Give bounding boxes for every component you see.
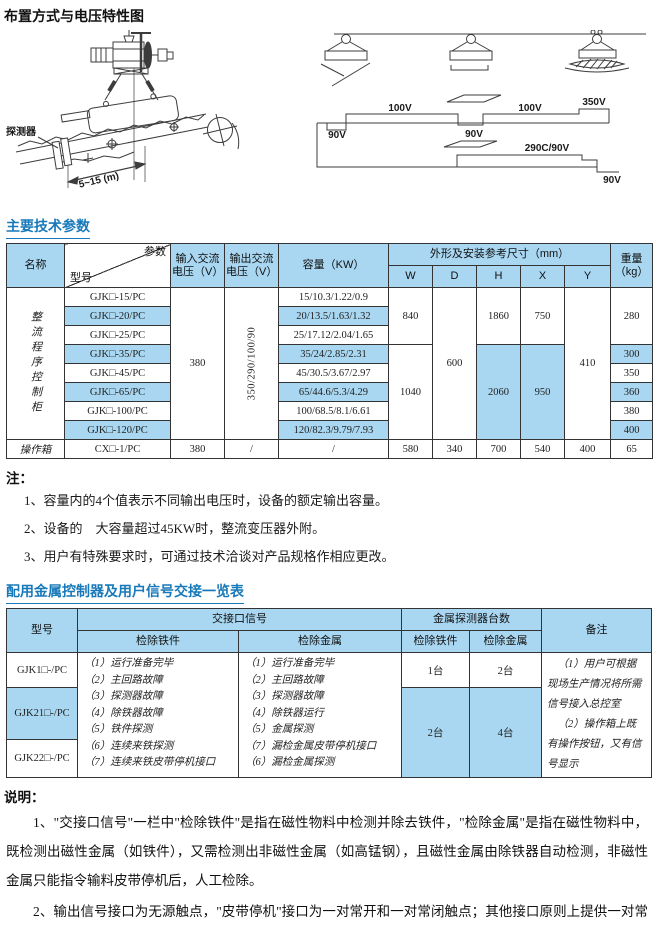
- col-header-output: 输出交流电压（V）: [225, 244, 279, 288]
- cell-name: 操作箱: [7, 440, 65, 459]
- col-header-weight: 重量（kg）: [611, 244, 653, 288]
- cell-model: GJK□-100/PC: [65, 402, 171, 421]
- voltage-label-100v-1: 100V: [388, 103, 412, 114]
- iron-signal-list: （1）运行准备完毕 （2）主回路故障 （3）探测器故障 （4）除铁器故障 （5）…: [78, 653, 239, 778]
- cell-model: GJK□-20/PC: [65, 307, 171, 326]
- notes-section: 注： 1、容量内的4个值表示不同输出电压时，设备的额定输出容量。 2、设备的 大…: [6, 467, 650, 571]
- cell-w: 1040: [389, 345, 433, 440]
- col-header-metal-signal: 检除金属: [239, 631, 402, 653]
- cell-y: 410: [565, 288, 611, 440]
- cell-input-voltage: 380: [171, 440, 225, 459]
- cell-model: GJK□-25/PC: [65, 326, 171, 345]
- signal-item: （1）运行准备完毕: [245, 656, 395, 673]
- cell-model: GJK□-15/PC: [65, 288, 171, 307]
- signal-item: （3）探测器故障: [245, 689, 395, 706]
- cell-model: GJK1□-/PC: [7, 653, 78, 688]
- page-title: 布置方式与电压特性图: [4, 6, 650, 26]
- signal-item: （4）除铁器故障: [84, 706, 232, 723]
- col-header-name: 名称: [7, 244, 65, 288]
- signal-item: （2）主回路故障: [245, 673, 395, 690]
- signal-item: （2）主回路故障: [84, 673, 232, 690]
- cell-iron-count: 1台: [402, 653, 470, 688]
- signal-table: 型号 交接口信号 金属探测器台数 备注 检除铁件 检除金属 检除铁件 检除金属 …: [6, 608, 652, 778]
- col-header-iron-count: 检除铁件: [402, 631, 470, 653]
- note-item: 1、容量内的4个值表示不同输出电压时，设备的额定输出容量。: [24, 487, 650, 515]
- cell-y: 400: [565, 440, 611, 459]
- col-header-model-param: 参数 型号: [65, 244, 171, 288]
- cell-model: GJK□-120/PC: [65, 421, 171, 440]
- col-header-d: D: [433, 266, 477, 288]
- section-title-params: 主要技术参数: [6, 216, 650, 239]
- signal-item: （7）连续来铁皮带停机接口: [84, 755, 232, 772]
- voltage-diagram: 90V 100V 90V 100V 350V 290C/90V 90V: [304, 30, 654, 205]
- distance-label: 5~15 (m): [78, 171, 120, 191]
- cell-w: 840: [389, 288, 433, 345]
- note-item: 3、用户有特殊要求时，可通过技术洽谈对产品规格作相应更改。: [24, 543, 650, 571]
- cell-input-voltage: 380: [171, 288, 225, 440]
- cell-capacity: 35/24/2.85/2.31: [279, 345, 389, 364]
- voltage-label-90v-right: 90V: [603, 175, 621, 186]
- signal-item: （6）漏检金属探测: [245, 755, 395, 772]
- col-header-metal-count: 检除金属: [470, 631, 542, 653]
- cell-capacity: 65/44.6/5.3/4.29: [279, 383, 389, 402]
- signal-item: （5）铁件探测: [84, 722, 232, 739]
- cell-capacity: 15/10.3/1.22/0.9: [279, 288, 389, 307]
- col-header-model: 型号: [7, 609, 78, 653]
- table-row: 操作箱 CX□-1/PC 380 / / 580 340 700 540 400…: [7, 440, 653, 459]
- cell-d: 600: [433, 288, 477, 440]
- cell-weight: 65: [611, 440, 653, 459]
- cell-model: GJK□-65/PC: [65, 383, 171, 402]
- voltage-label-290c-90v: 290C/90V: [525, 143, 570, 154]
- detector-label: 探测器: [6, 125, 37, 138]
- col-header-detectors: 金属探测器台数: [402, 609, 542, 631]
- col-header-h: H: [477, 266, 521, 288]
- tech-params-table: 名称 参数 型号 输入交流电压（V） 输出交流电压（V） 容量（KW） 外形及安…: [6, 243, 653, 459]
- cell-capacity: 45/30.5/3.67/2.97: [279, 364, 389, 383]
- note-item: 2、设备的 大容量超过45KW时，整流变压器外附。: [24, 515, 650, 543]
- signal-item: （7）漏检金属皮带停机接口: [245, 739, 395, 756]
- col-header-capacity: 容量（KW）: [279, 244, 389, 288]
- cell-model: CX□-1/PC: [65, 440, 171, 459]
- cell-w: 580: [389, 440, 433, 459]
- signal-item: （6）连续来铁探测: [84, 739, 232, 756]
- diag-model-label: 型号: [70, 272, 92, 285]
- cell-model: GJK□-35/PC: [65, 345, 171, 364]
- catalog-page: 布置方式与电压特性图: [0, 0, 654, 928]
- cell-x: 950: [521, 345, 565, 440]
- cell-capacity: 25/17.12/2.04/1.65: [279, 326, 389, 345]
- cell-weight: 380: [611, 402, 653, 421]
- explain-paragraph-2: 2、输出信号接口为无源触点，"皮带停机"接口为一对常开和一对常闭触点；其他接口原…: [6, 897, 648, 928]
- cell-weight: 280: [611, 288, 653, 345]
- cell-capacity: /: [279, 440, 389, 459]
- cell-x: 750: [521, 288, 565, 345]
- signal-item: （1）运行准备完毕: [84, 656, 232, 673]
- cell-h: 1860: [477, 288, 521, 345]
- cell-capacity: 100/68.5/8.1/6.61: [279, 402, 389, 421]
- cell-d: 340: [433, 440, 477, 459]
- cell-metal-count: 4台: [470, 688, 542, 778]
- remark-line: （2）操作箱上既有操作按钮，又有信号显示: [547, 715, 646, 775]
- table-row: GJK1□-/PC （1）运行准备完毕 （2）主回路故障 （3）探测器故障 （4…: [7, 653, 652, 688]
- col-header-iron-signal: 检除铁件: [78, 631, 239, 653]
- cell-capacity: 20/13.5/1.63/1.32: [279, 307, 389, 326]
- col-header-remark: 备注: [542, 609, 652, 653]
- col-header-input: 输入交流电压（V）: [171, 244, 225, 288]
- cell-weight: 360: [611, 383, 653, 402]
- metal-signal-list: （1）运行准备完毕 （2）主回路故障 （3）探测器故障 （4）除铁器运行 （5）…: [239, 653, 402, 778]
- voltage-label-100v-2: 100V: [518, 103, 542, 114]
- layout-diagram: 探测器 5~15 (m): [4, 30, 304, 205]
- voltage-label-90v-left: 90V: [328, 130, 346, 141]
- remark-line: （1）用户可根据现场生产情况将所需信号接入总控室: [547, 655, 646, 715]
- cell-h: 2060: [477, 345, 521, 440]
- voltage-label-350v: 350V: [582, 97, 606, 108]
- section-title-signals: 配用金属控制器及用户信号交接一览表: [6, 581, 650, 604]
- explain-paragraph-1: 1、"交接口信号"一栏中"检除铁件"是指在磁性物料中检测并除去铁件，"检除金属"…: [6, 808, 648, 895]
- table-row: 整流程序控制柜 GJK□-15/PC 380 350/290/100/90 15…: [7, 288, 653, 307]
- cell-model: GJK22□-/PC: [7, 740, 78, 778]
- cell-model: GJK□-45/PC: [65, 364, 171, 383]
- cell-output-voltage: 350/290/100/90: [225, 288, 279, 440]
- cell-weight: 350: [611, 364, 653, 383]
- cell-model: GJK21□-/PC: [7, 688, 78, 740]
- signal-item: （3）探测器故障: [84, 689, 232, 706]
- signal-item: （4）除铁器运行: [245, 706, 395, 723]
- cell-metal-count: 2台: [470, 653, 542, 688]
- table-row: GJK□-35/PC 35/24/2.85/2.31 1040 2060 950…: [7, 345, 653, 364]
- col-header-w: W: [389, 266, 433, 288]
- col-header-interface: 交接口信号: [78, 609, 402, 631]
- notes-title: 注：: [6, 467, 650, 487]
- cell-weight: 300: [611, 345, 653, 364]
- col-header-dims: 外形及安装参考尺寸（mm）: [389, 244, 611, 266]
- group-name-cell: 整流程序控制柜: [7, 288, 65, 440]
- signal-item: （5）金属探测: [245, 722, 395, 739]
- cell-weight: 400: [611, 421, 653, 440]
- col-header-y: Y: [565, 266, 611, 288]
- diag-param-label: 参数: [144, 246, 166, 259]
- cell-capacity: 120/82.3/9.79/7.93: [279, 421, 389, 440]
- explain-title: 说明：: [4, 786, 650, 806]
- cell-h: 700: [477, 440, 521, 459]
- cell-x: 540: [521, 440, 565, 459]
- voltage-label-90v-mid: 90V: [465, 129, 483, 140]
- cell-iron-count: 2台: [402, 688, 470, 778]
- col-header-x: X: [521, 266, 565, 288]
- remark-cell: （1）用户可根据现场生产情况将所需信号接入总控室 （2）操作箱上既有操作按钮，又…: [542, 653, 652, 778]
- cell-output-voltage: /: [225, 440, 279, 459]
- diagrams-row: 探测器 5~15 (m): [4, 30, 650, 206]
